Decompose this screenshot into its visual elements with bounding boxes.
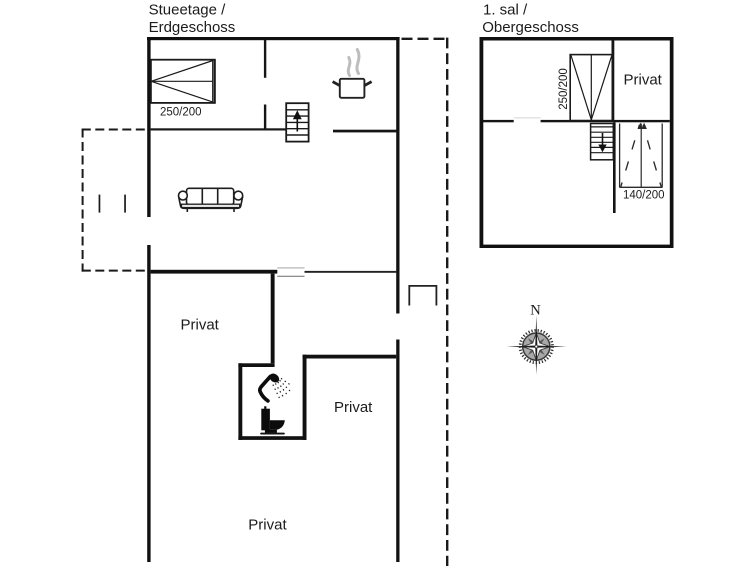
svg-text:Stueetage /: Stueetage / — [149, 2, 227, 19]
svg-text:250/200: 250/200 — [160, 106, 202, 118]
svg-text:1. sal /: 1. sal / — [483, 2, 528, 19]
svg-text:Privat: Privat — [624, 71, 663, 88]
svg-text:Erdgeschoss: Erdgeschoss — [149, 19, 236, 36]
svg-text:Privat: Privat — [334, 399, 373, 416]
svg-text:250/200: 250/200 — [558, 68, 570, 110]
svg-text:Obergeschoss: Obergeschoss — [482, 19, 579, 36]
svg-text:Privat: Privat — [248, 517, 287, 534]
svg-text:Privat: Privat — [181, 317, 220, 334]
svg-text:N: N — [530, 303, 541, 319]
svg-text:140/200: 140/200 — [623, 190, 665, 202]
